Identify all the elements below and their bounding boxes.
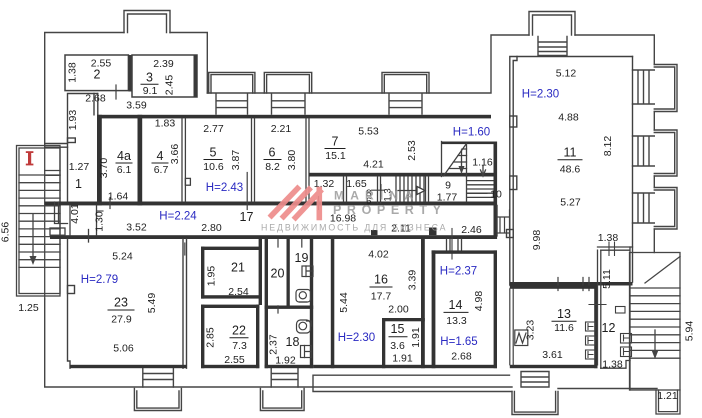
svg-text:1.93: 1.93 bbox=[67, 110, 79, 131]
svg-text:2.68: 2.68 bbox=[451, 351, 472, 363]
svg-text:H=1.65: H=1.65 bbox=[440, 336, 477, 348]
svg-text:1.95: 1.95 bbox=[206, 266, 218, 287]
svg-text:2.21: 2.21 bbox=[271, 123, 292, 135]
svg-text:H=2.43: H=2.43 bbox=[206, 182, 243, 194]
svg-text:5: 5 bbox=[210, 146, 217, 160]
svg-text:H=1.60: H=1.60 bbox=[453, 126, 490, 138]
svg-text:5.49: 5.49 bbox=[146, 293, 158, 314]
svg-text:1.92: 1.92 bbox=[275, 354, 296, 366]
svg-text:3.59: 3.59 bbox=[126, 100, 147, 112]
svg-text:11.6: 11.6 bbox=[554, 322, 574, 334]
svg-text:1.77: 1.77 bbox=[437, 192, 458, 204]
svg-text:4.98: 4.98 bbox=[473, 291, 485, 312]
svg-text:9.1: 9.1 bbox=[143, 85, 158, 97]
svg-text:3: 3 bbox=[146, 71, 153, 85]
svg-text:1.21: 1.21 bbox=[657, 390, 678, 402]
svg-text:3.87: 3.87 bbox=[230, 150, 242, 171]
svg-text:2.39: 2.39 bbox=[153, 58, 174, 70]
svg-text:11: 11 bbox=[564, 146, 577, 160]
svg-text:5.06: 5.06 bbox=[113, 342, 134, 354]
svg-text:2.55: 2.55 bbox=[224, 354, 245, 366]
svg-text:5.44: 5.44 bbox=[338, 292, 350, 313]
svg-text:1.38: 1.38 bbox=[602, 359, 623, 371]
svg-text:3.6: 3.6 bbox=[390, 340, 405, 352]
svg-text:2.80: 2.80 bbox=[201, 222, 222, 234]
svg-text:20: 20 bbox=[271, 267, 285, 281]
svg-text:2.77: 2.77 bbox=[203, 123, 224, 135]
svg-text:6: 6 bbox=[269, 146, 276, 160]
svg-text:2.85: 2.85 bbox=[205, 327, 217, 348]
svg-text:21: 21 bbox=[231, 261, 245, 275]
svg-text:19: 19 bbox=[295, 251, 309, 265]
svg-text:2.45: 2.45 bbox=[164, 75, 176, 96]
svg-text:4.01: 4.01 bbox=[69, 203, 81, 224]
svg-text:1.27: 1.27 bbox=[69, 161, 90, 173]
svg-text:17.7: 17.7 bbox=[371, 290, 392, 302]
svg-text:3.80: 3.80 bbox=[286, 150, 298, 171]
svg-text:16: 16 bbox=[374, 273, 388, 287]
svg-text:23: 23 bbox=[114, 296, 128, 310]
svg-text:4.88: 4.88 bbox=[558, 112, 579, 124]
svg-text:27.9: 27.9 bbox=[111, 314, 132, 326]
svg-text:3.39: 3.39 bbox=[407, 270, 419, 291]
svg-text:3.66: 3.66 bbox=[169, 144, 181, 165]
svg-text:2.68: 2.68 bbox=[85, 93, 106, 105]
svg-text:PROPERTY: PROPERTY bbox=[333, 203, 447, 217]
svg-text:H=2.79: H=2.79 bbox=[81, 274, 118, 286]
svg-text:5.11: 5.11 bbox=[601, 269, 613, 289]
svg-text:H=2.37: H=2.37 bbox=[440, 266, 477, 278]
svg-text:1.30: 1.30 bbox=[94, 211, 106, 232]
svg-text:5.53: 5.53 bbox=[358, 125, 379, 137]
svg-text:6.1: 6.1 bbox=[117, 164, 132, 176]
svg-text:2.00: 2.00 bbox=[388, 304, 409, 316]
svg-text:6.7: 6.7 bbox=[154, 164, 169, 176]
svg-text:5.94: 5.94 bbox=[684, 321, 696, 342]
svg-text:2.54: 2.54 bbox=[228, 286, 249, 298]
svg-text:18: 18 bbox=[286, 335, 300, 349]
svg-text:1.83: 1.83 bbox=[155, 117, 176, 129]
svg-text:2.37: 2.37 bbox=[268, 334, 280, 355]
svg-text:5.27: 5.27 bbox=[560, 196, 581, 208]
svg-text:1.91: 1.91 bbox=[410, 327, 422, 348]
svg-text:3.23: 3.23 bbox=[525, 320, 537, 341]
svg-text:H=2.24: H=2.24 bbox=[159, 211, 197, 223]
svg-text:2: 2 bbox=[94, 68, 101, 82]
svg-text:9.98: 9.98 bbox=[531, 230, 543, 251]
svg-text:7: 7 bbox=[332, 135, 339, 149]
svg-text:4: 4 bbox=[157, 149, 164, 163]
svg-text:13: 13 bbox=[557, 307, 571, 321]
svg-text:6.56: 6.56 bbox=[0, 222, 12, 243]
svg-text:MARINA: MARINA bbox=[334, 189, 419, 203]
svg-text:8.12: 8.12 bbox=[602, 136, 614, 157]
svg-text:48.6: 48.6 bbox=[560, 164, 581, 176]
svg-text:2.53: 2.53 bbox=[406, 140, 418, 161]
svg-text:3.70: 3.70 bbox=[98, 158, 110, 179]
svg-text:1.38: 1.38 bbox=[598, 232, 619, 244]
svg-text:4a: 4a bbox=[117, 149, 131, 163]
svg-text:12: 12 bbox=[602, 321, 616, 335]
svg-text:8.2: 8.2 bbox=[265, 161, 280, 173]
svg-text:22: 22 bbox=[232, 324, 246, 338]
svg-text:14: 14 bbox=[449, 298, 463, 312]
svg-text:5.12: 5.12 bbox=[556, 67, 577, 79]
svg-text:13.3: 13.3 bbox=[446, 315, 467, 327]
svg-text:15.1: 15.1 bbox=[325, 150, 346, 162]
svg-text:1.25: 1.25 bbox=[18, 302, 39, 314]
svg-text:H=2.30: H=2.30 bbox=[338, 332, 375, 344]
svg-text:5.24: 5.24 bbox=[112, 251, 133, 263]
svg-text:НЕДВИЖИМОСТЬ ДЛЯ БИЗНЕСА: НЕДВИЖИМОСТЬ ДЛЯ БИЗНЕСА bbox=[261, 223, 447, 233]
svg-text:10: 10 bbox=[490, 189, 502, 201]
svg-text:4.02: 4.02 bbox=[368, 249, 389, 261]
svg-text:1.16: 1.16 bbox=[472, 157, 493, 169]
svg-text:10.6: 10.6 bbox=[203, 161, 224, 173]
svg-text:9: 9 bbox=[445, 180, 451, 192]
svg-text:2.46: 2.46 bbox=[461, 224, 482, 236]
svg-text:15: 15 bbox=[391, 322, 405, 336]
svg-text:H=2.30: H=2.30 bbox=[522, 89, 559, 101]
svg-text:4.21: 4.21 bbox=[363, 158, 384, 170]
svg-text:17: 17 bbox=[240, 210, 254, 224]
svg-text:3.61: 3.61 bbox=[542, 349, 563, 361]
svg-text:7.3: 7.3 bbox=[232, 340, 247, 352]
svg-text:1.91: 1.91 bbox=[392, 352, 413, 364]
svg-text:1.64: 1.64 bbox=[108, 191, 129, 203]
svg-text:1.38: 1.38 bbox=[67, 62, 79, 83]
svg-text:1: 1 bbox=[75, 177, 82, 191]
svg-text:3.52: 3.52 bbox=[126, 221, 147, 233]
